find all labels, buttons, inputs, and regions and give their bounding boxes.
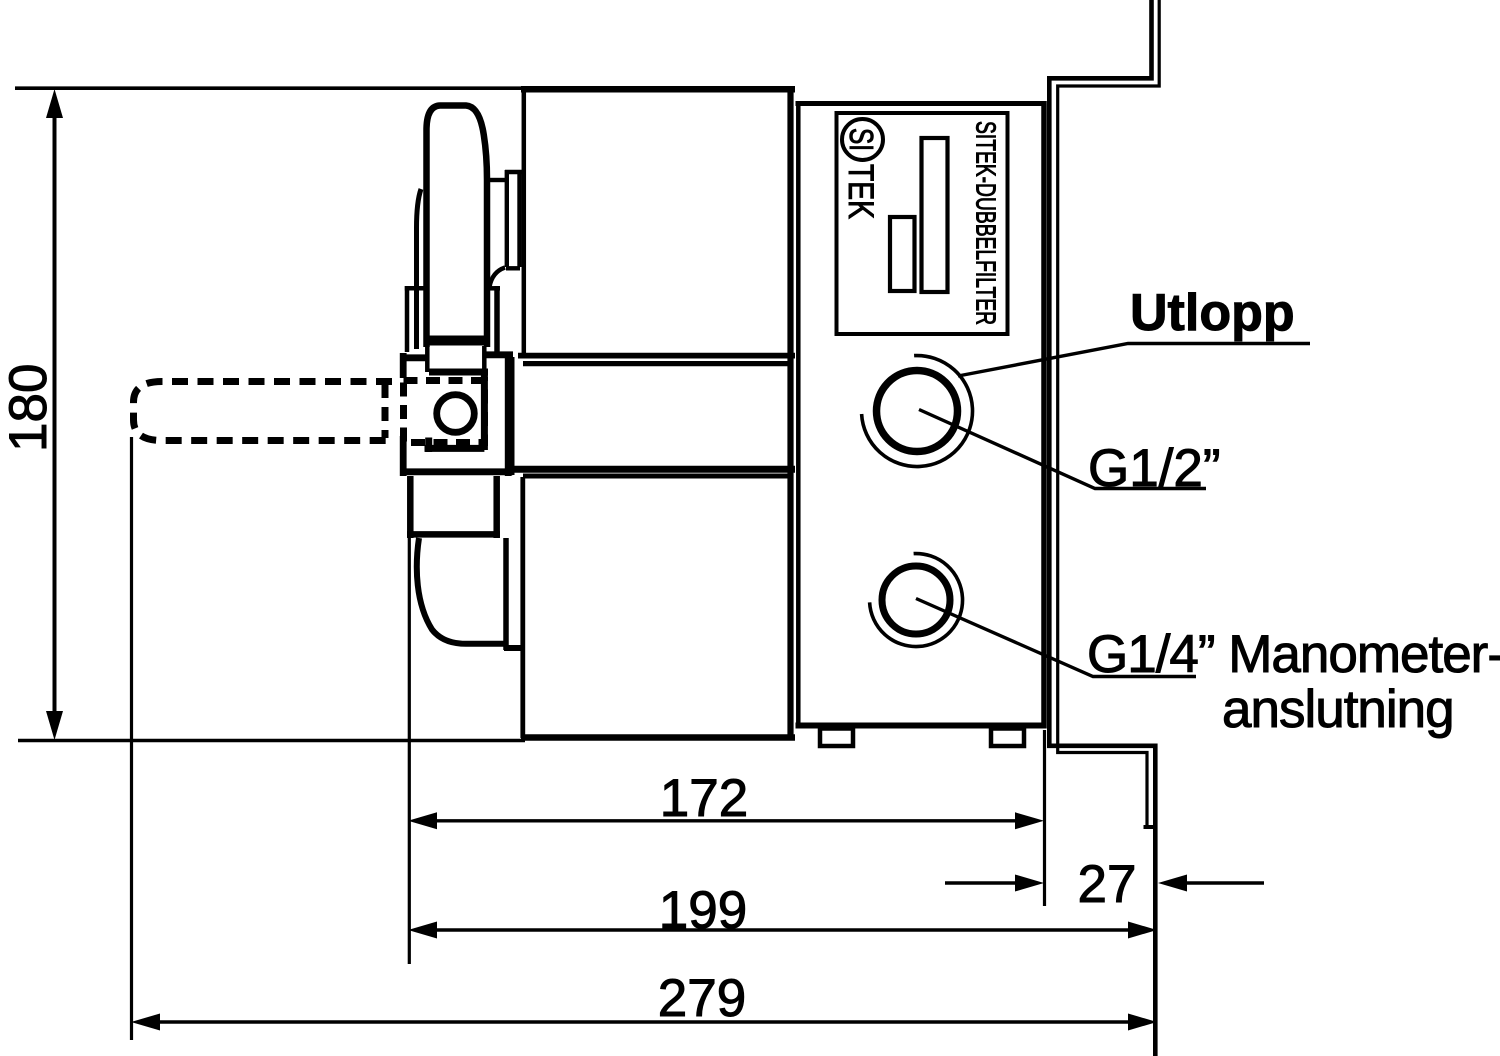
svg-text:anslutning: anslutning (1222, 680, 1454, 739)
svg-text:199: 199 (659, 881, 747, 940)
svg-text:TEK: TEK (841, 164, 880, 219)
svg-text:172: 172 (660, 769, 748, 828)
svg-text:SI: SI (843, 128, 880, 151)
svg-text:279: 279 (658, 969, 746, 1028)
svg-text:G1/4” Manometer-: G1/4” Manometer- (1087, 625, 1500, 684)
svg-text:27: 27 (1078, 855, 1137, 914)
svg-text:G1/2”: G1/2” (1088, 439, 1221, 498)
svg-text:180: 180 (0, 364, 58, 452)
svg-text:Utlopp: Utlopp (1130, 284, 1295, 342)
svg-text:SITEK-DUBBELFILTER: SITEK-DUBBELFILTER (971, 121, 1002, 325)
